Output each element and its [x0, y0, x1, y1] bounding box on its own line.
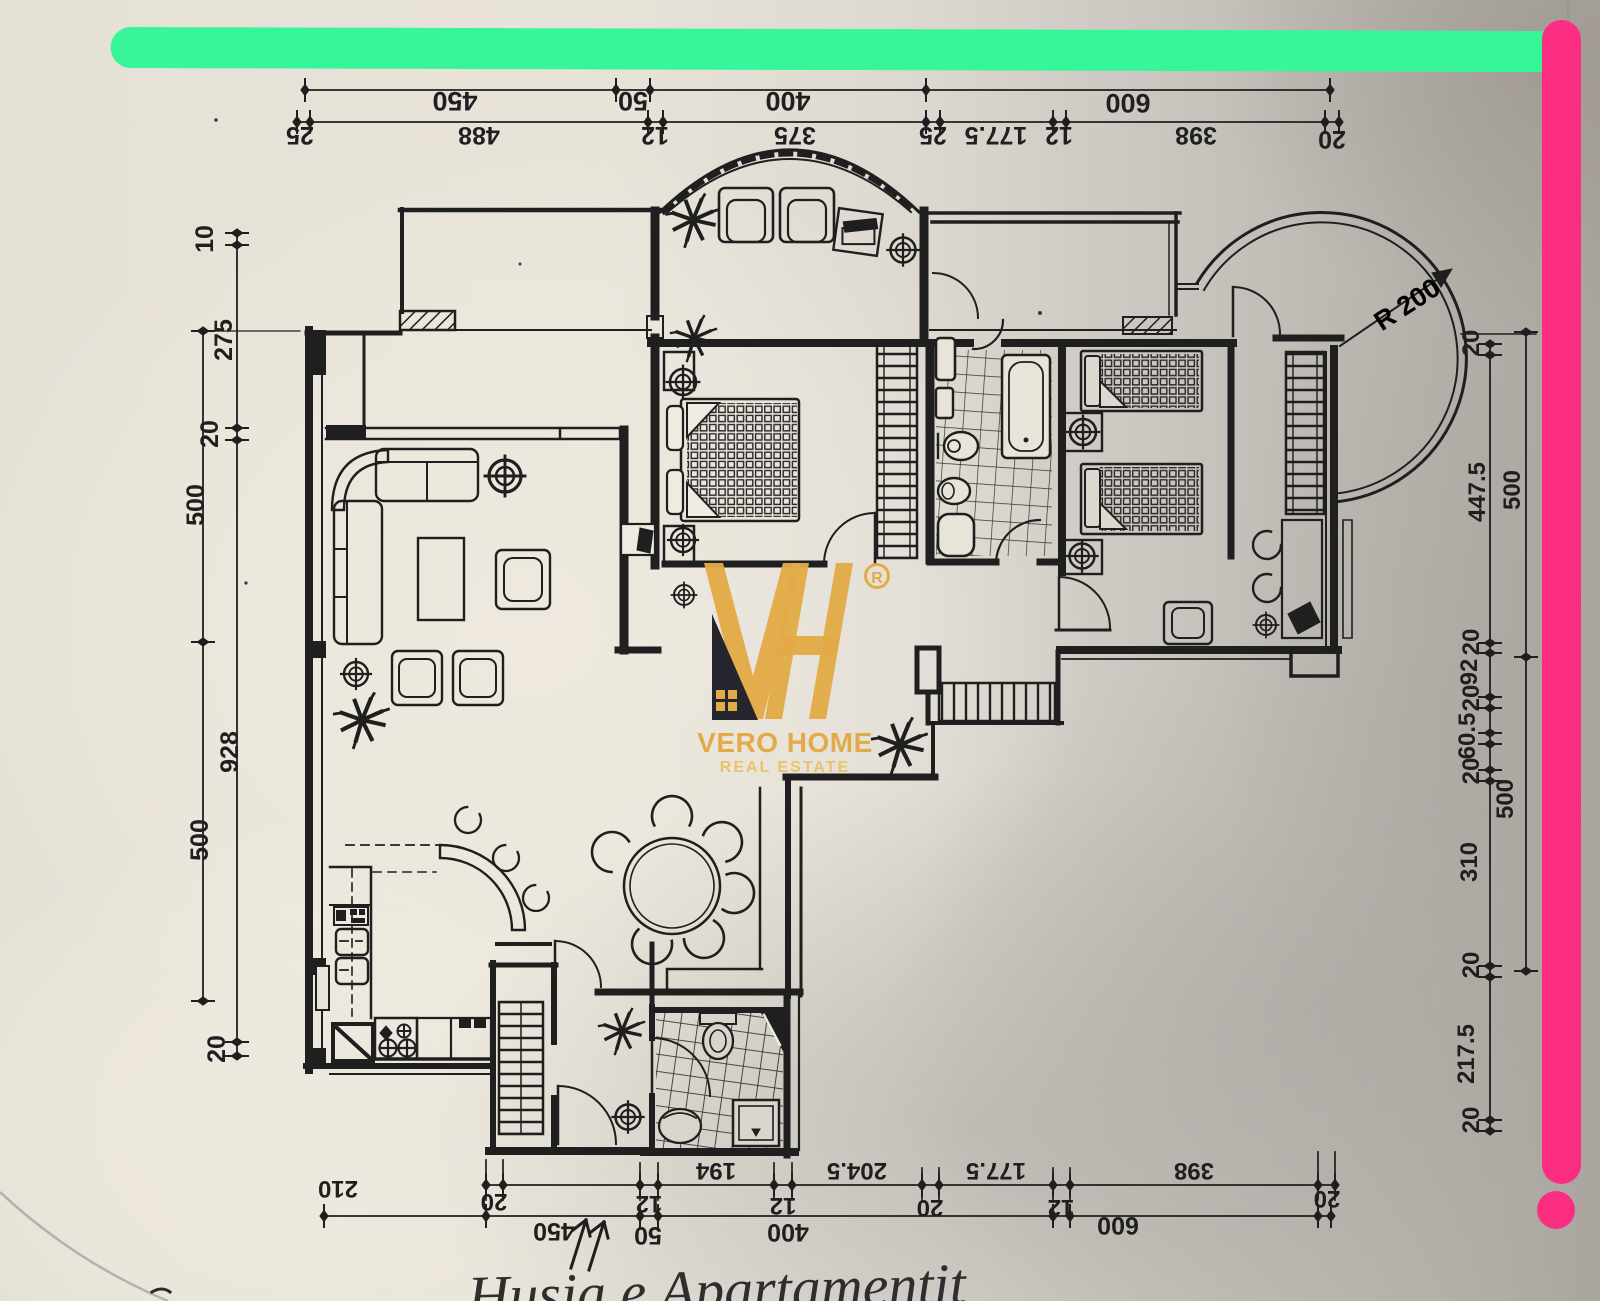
svg-text:928: 928 [216, 731, 244, 773]
svg-text:20: 20 [1458, 330, 1485, 357]
svg-text:10: 10 [191, 225, 219, 253]
svg-text:210: 210 [318, 1175, 358, 1202]
svg-text:600: 600 [1097, 1211, 1139, 1239]
svg-text:20: 20 [1458, 952, 1485, 979]
svg-text:447.5: 447.5 [1464, 462, 1491, 522]
svg-text:398: 398 [1174, 1157, 1214, 1184]
svg-text:25: 25 [286, 121, 314, 149]
svg-text:25: 25 [919, 121, 947, 149]
svg-text:20: 20 [917, 1194, 944, 1221]
svg-text:20: 20 [196, 420, 224, 448]
svg-text:450: 450 [533, 1217, 575, 1245]
svg-text:50: 50 [618, 86, 648, 116]
svg-text:500: 500 [186, 819, 214, 861]
svg-text:500: 500 [1499, 470, 1526, 510]
svg-text:310: 310 [1456, 842, 1483, 882]
svg-text:600: 600 [1105, 88, 1150, 118]
svg-text:194: 194 [695, 1157, 736, 1184]
svg-text:450: 450 [432, 86, 477, 116]
svg-text:20: 20 [1458, 1107, 1485, 1134]
svg-text:500: 500 [182, 484, 210, 526]
svg-text:12: 12 [1045, 121, 1073, 149]
svg-text:12: 12 [641, 121, 669, 149]
svg-text:275: 275 [210, 319, 238, 361]
svg-text:20: 20 [1458, 758, 1485, 785]
svg-text:217.5: 217.5 [1453, 1024, 1480, 1084]
svg-text:400: 400 [767, 1218, 809, 1246]
svg-text:60.5: 60.5 [1454, 713, 1481, 760]
svg-text:12: 12 [770, 1192, 797, 1219]
svg-text:400: 400 [765, 86, 810, 116]
svg-text:20: 20 [203, 1035, 231, 1063]
svg-text:20: 20 [1458, 685, 1485, 712]
svg-text:VERO HOME: VERO HOME [697, 727, 873, 758]
svg-text:92: 92 [1456, 659, 1483, 686]
svg-text:177.5: 177.5 [966, 1157, 1026, 1184]
svg-text:398: 398 [1175, 121, 1217, 149]
svg-text:20: 20 [481, 1188, 508, 1215]
svg-text:375: 375 [774, 121, 816, 149]
svg-text:20: 20 [1318, 125, 1346, 153]
svg-text:R: R [871, 570, 883, 587]
svg-text:500: 500 [1492, 779, 1519, 819]
svg-text:204.5: 204.5 [827, 1157, 887, 1184]
svg-text:488: 488 [458, 121, 500, 149]
svg-text:177.5: 177.5 [965, 121, 1028, 149]
svg-text:50: 50 [634, 1221, 662, 1249]
svg-text:20: 20 [1458, 629, 1485, 656]
svg-text:REAL ESTATE: REAL ESTATE [720, 759, 850, 776]
